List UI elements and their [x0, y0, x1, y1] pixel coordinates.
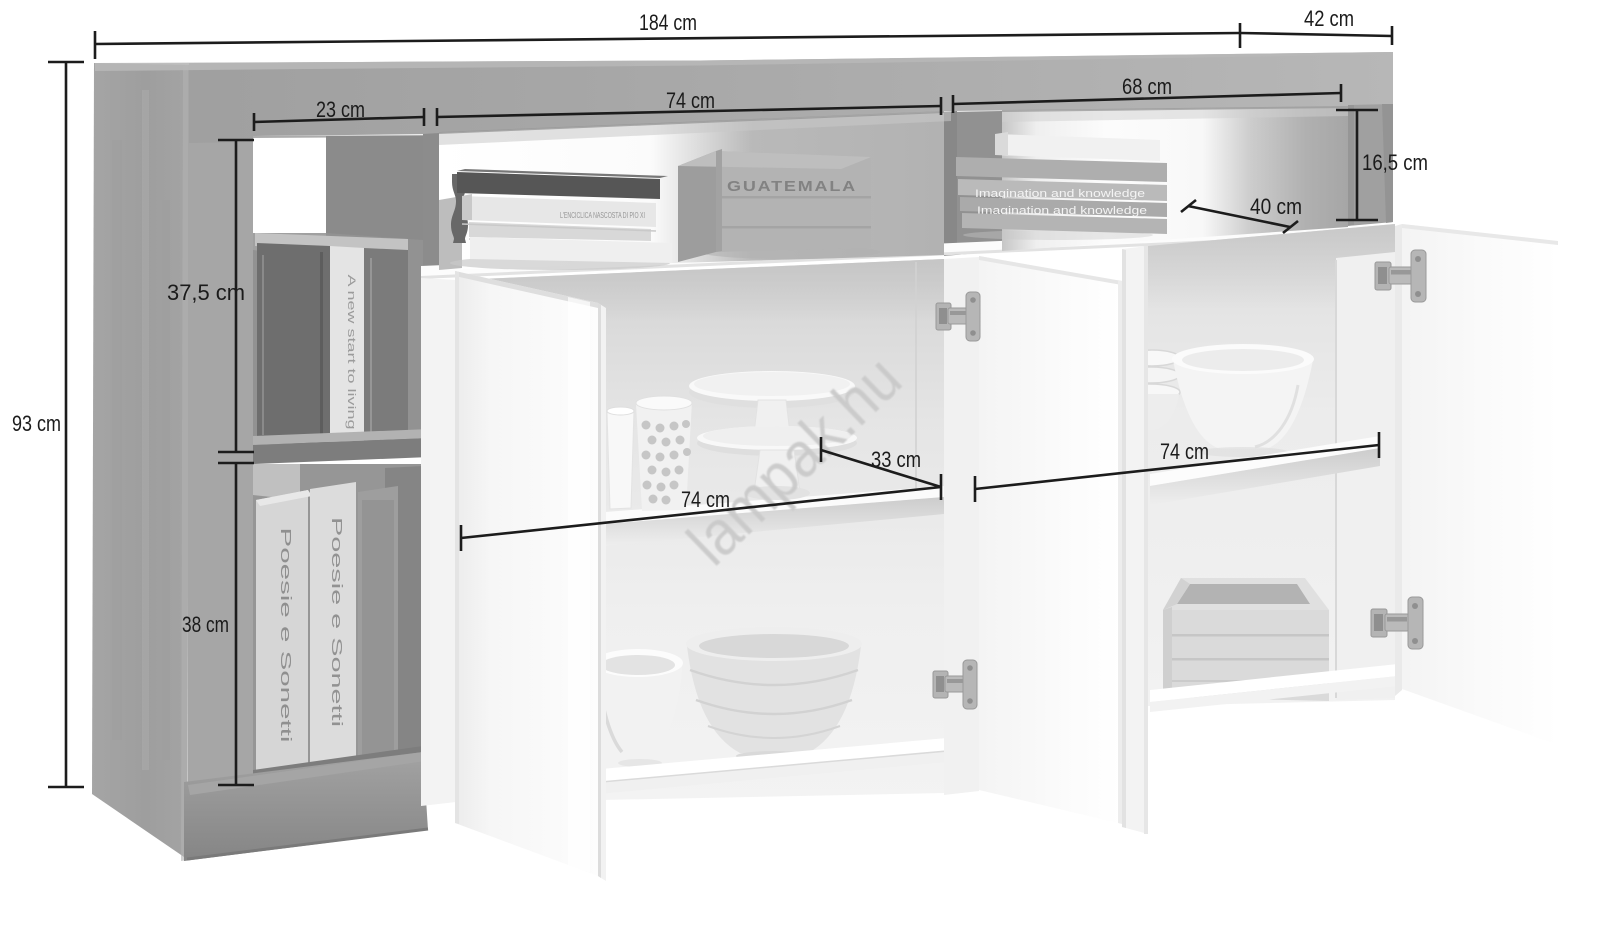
svg-text:33 cm: 33 cm — [871, 447, 921, 472]
svg-text:184 cm: 184 cm — [639, 10, 697, 35]
svg-text:68 cm: 68 cm — [1122, 74, 1172, 99]
svg-text:A new start to living: A new start to living — [345, 275, 357, 430]
svg-text:40 cm: 40 cm — [1250, 194, 1302, 219]
svg-text:38 cm: 38 cm — [182, 612, 229, 637]
svg-text:42 cm: 42 cm — [1304, 6, 1354, 31]
svg-text:GUATEMALA: GUATEMALA — [727, 178, 857, 195]
svg-text:16,5 cm: 16,5 cm — [1362, 150, 1428, 175]
svg-text:Poesie e Sonetti: Poesie e Sonetti — [277, 528, 294, 743]
svg-text:74 cm: 74 cm — [681, 487, 730, 512]
svg-text:74 cm: 74 cm — [666, 88, 715, 113]
svg-text:23 cm: 23 cm — [316, 97, 365, 122]
svg-text:Poesie e Sonetti: Poesie e Sonetti — [328, 517, 345, 727]
svg-text:93 cm: 93 cm — [12, 411, 61, 436]
svg-text:37,5 cm: 37,5 cm — [167, 280, 245, 305]
svg-text:L'ENCICLICA NASCOSTA DI PIO XI: L'ENCICLICA NASCOSTA DI PIO XI — [560, 210, 645, 220]
svg-text:74 cm: 74 cm — [1160, 439, 1209, 464]
